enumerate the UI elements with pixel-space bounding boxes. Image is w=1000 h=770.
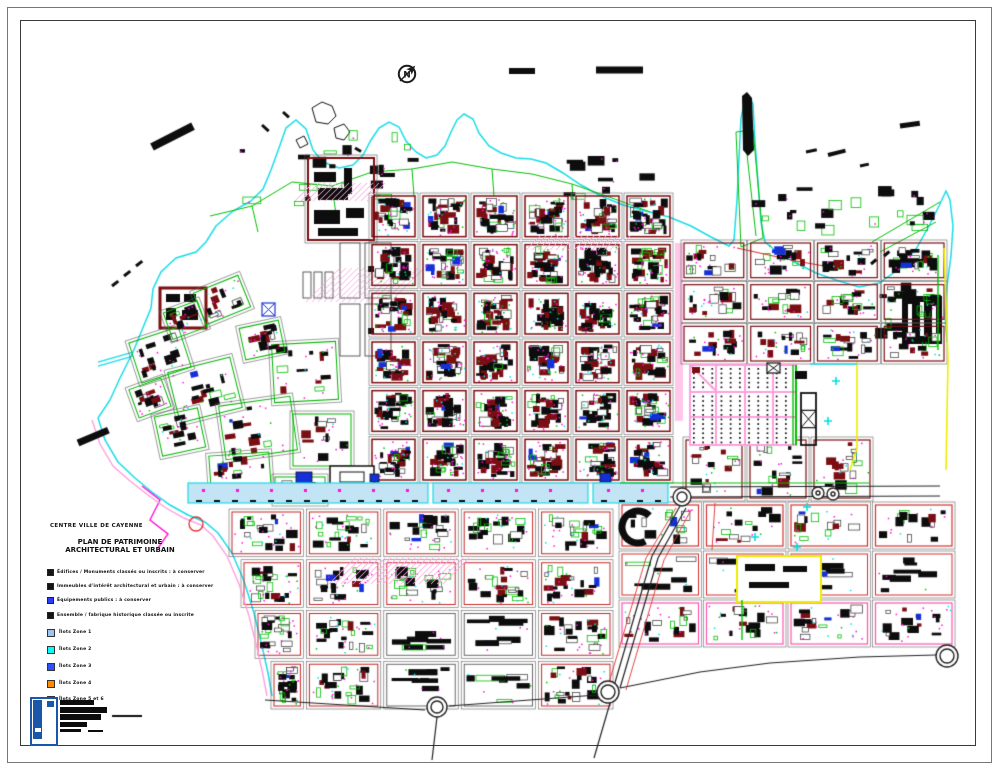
cartouche-text-bar <box>60 700 94 705</box>
legend-entry: Édifices / Monuments classés ou inscrits… <box>47 562 205 569</box>
legend-zone-swatch <box>47 646 55 654</box>
legend-zone-label: Îlots Zone 3 <box>59 664 91 669</box>
legend-entry-swatch <box>47 597 54 604</box>
legend-zone-item: Îlots Zone 1 <box>47 622 91 629</box>
logo-column <box>33 700 42 739</box>
legend-entry: Ensemble / fabrique historique classée o… <box>47 605 194 612</box>
legend-entry-label: Équipements publics : à conserver <box>57 598 151 603</box>
legend-zone-swatch <box>47 663 55 671</box>
logo-mark <box>47 701 54 707</box>
svg-text:N: N <box>403 71 411 81</box>
legend-entry-swatch <box>47 569 54 576</box>
legend-zone-swatch <box>47 680 55 688</box>
cartouche-text-bar <box>60 714 101 720</box>
legend-entry: Immeubles d'intérêt architectural et urb… <box>47 576 213 583</box>
legend-entry-label: Ensemble / fabrique historique classée o… <box>57 613 194 618</box>
legend-zone-item: Îlots Zone 2 <box>47 639 91 646</box>
legend-zone-label: Îlots Zone 2 <box>59 647 91 652</box>
legend-zone-label: Îlots Zone 4 <box>59 681 91 686</box>
legend-zone-item: Îlots Zone 3 <box>47 656 91 663</box>
legend-zone-label: Îlots Zone 1 <box>59 630 91 635</box>
city-map-canvas <box>0 0 1000 770</box>
legend-subtitle: CENTRE VILLE DE CAYENNE <box>50 523 143 529</box>
cartouche-text-bar <box>60 722 87 727</box>
legend-zone-swatch <box>47 629 55 637</box>
legend-entry-label: Immeubles d'intérêt architectural et urb… <box>57 584 213 589</box>
legend-entry-swatch <box>47 612 54 619</box>
legend-entry-label: Édifices / Monuments classés ou inscrits… <box>57 570 205 575</box>
cartouche-text-bar <box>60 707 107 713</box>
cartouche-text-bar <box>88 730 103 732</box>
agency-logo <box>30 697 58 746</box>
north-arrow-icon: N <box>395 62 419 86</box>
legend-entry-swatch <box>47 583 54 590</box>
map-sheet: N CENTRE VILLE DE CAYENNE PLAN DE PATRIM… <box>0 0 1000 770</box>
legend-zone-item: Îlots Zone 4 <box>47 673 91 680</box>
cartouche-text-bar <box>60 729 81 732</box>
logo-notch <box>35 728 41 732</box>
legend-zone-item: Îlots Zone 5 et 6 <box>47 689 104 696</box>
legend-entry: Équipements publics : à conserver <box>47 590 151 597</box>
legend-title: PLAN DE PATRIMOINE ARCHITECTURAL ET URBA… <box>44 539 196 554</box>
